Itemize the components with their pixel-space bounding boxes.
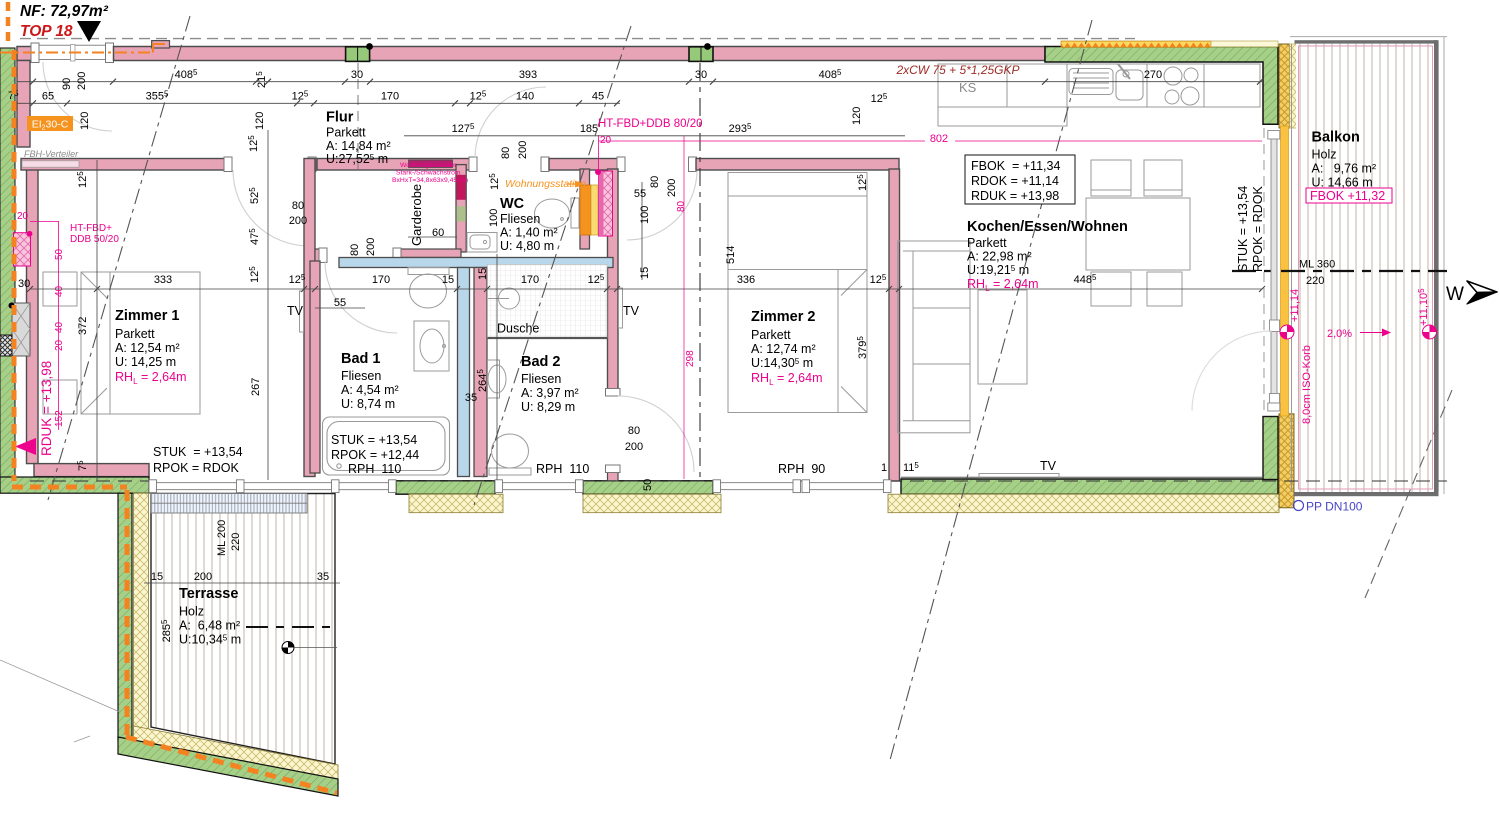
svg-text:A: 4,54 m²: A: 4,54 m²: [341, 383, 399, 397]
svg-text:Parkett: Parkett: [326, 126, 366, 140]
svg-text:40: 40: [54, 285, 65, 297]
svg-text:U: 8,29 m: U: 8,29 m: [521, 400, 575, 414]
svg-text:20: 20: [54, 339, 65, 351]
svg-text:RHL = 2,64m: RHL = 2,64m: [751, 371, 823, 387]
svg-text:170: 170: [381, 91, 399, 103]
svg-text:185: 185: [580, 123, 598, 135]
svg-text:RPH 90: RPH 90: [778, 462, 825, 476]
svg-text:+11,105: +11,105: [1417, 288, 1430, 326]
svg-text:220: 220: [230, 533, 242, 551]
svg-text:U: 4,80 m: U: 4,80 m: [500, 239, 554, 253]
svg-text:Terrasse: Terrasse: [179, 586, 238, 602]
svg-text:802: 802: [930, 133, 948, 145]
svg-text:RDOK = +11,14: RDOK = +11,14: [971, 174, 1059, 188]
svg-text:80: 80: [628, 425, 640, 437]
svg-text:RPOK = RDOK: RPOK = RDOK: [153, 461, 239, 475]
svg-text:Wohnungsverteiler: Wohnungsverteiler: [400, 162, 457, 169]
svg-text:RPOK = RDOK: RPOK = RDOK: [1251, 186, 1265, 272]
svg-text:393: 393: [519, 69, 537, 81]
svg-text:DDB 50/20: DDB 50/20: [70, 234, 119, 245]
svg-text:514: 514: [725, 246, 737, 264]
svg-text:200: 200: [194, 571, 212, 583]
svg-text:U:19,215 m: U:19,215 m: [967, 263, 1029, 277]
svg-text:FBOK = +11,34: FBOK = +11,34: [971, 159, 1060, 173]
svg-text:140: 140: [516, 91, 534, 103]
svg-text:Zimmer 1: Zimmer 1: [115, 308, 179, 324]
svg-text:55: 55: [334, 297, 346, 309]
svg-text:15: 15: [442, 274, 454, 286]
svg-text:8,0cm ISO-Korb: 8,0cm ISO-Korb: [1301, 345, 1313, 424]
svg-text:267: 267: [250, 378, 262, 396]
svg-text:A: 14,84 m²: A: 14,84 m²: [326, 139, 391, 153]
svg-text:80: 80: [349, 244, 361, 256]
svg-text:RHL = 2,64m: RHL = 2,64m: [967, 277, 1039, 293]
svg-text:STUK = +13,54: STUK = +13,54: [153, 445, 243, 459]
svg-text:270: 270: [1144, 69, 1162, 81]
svg-text:333: 333: [154, 274, 172, 286]
svg-text:WC: WC: [500, 196, 525, 212]
svg-text:100: 100: [639, 206, 651, 224]
svg-text:HT-FBD+: HT-FBD+: [70, 223, 112, 234]
svg-text:RPOK = +12,44: RPOK = +12,44: [331, 448, 419, 462]
svg-text:80: 80: [500, 147, 512, 159]
svg-text:NF: 72,97m²: NF: 72,97m²: [20, 3, 109, 20]
svg-text:RHL = 2,64m: RHL = 2,64m: [115, 370, 187, 386]
svg-text:FBH-Verteiler: FBH-Verteiler: [24, 149, 79, 159]
svg-text:A: 12,54 m²: A: 12,54 m²: [115, 341, 180, 355]
svg-text:120: 120: [254, 112, 266, 130]
svg-text:Parkett: Parkett: [115, 327, 155, 341]
svg-text:Balkon: Balkon: [1312, 130, 1360, 146]
svg-text:15: 15: [477, 268, 489, 280]
svg-text:220: 220: [1306, 275, 1324, 287]
svg-text:ML 200: ML 200: [216, 520, 228, 556]
svg-text:U: 14,66 m: U: 14,66 m: [1312, 176, 1373, 190]
svg-text:200: 200: [76, 72, 88, 90]
svg-text:KS: KS: [959, 80, 977, 95]
svg-text:80: 80: [676, 200, 687, 212]
svg-text:100: 100: [488, 209, 500, 227]
svg-text:Flur: Flur: [326, 110, 354, 126]
svg-text:A: 1,40 m²: A: 1,40 m²: [500, 226, 558, 240]
svg-text:30: 30: [18, 278, 30, 290]
svg-text:A: 9,76 m²: A: 9,76 m²: [1312, 162, 1377, 176]
svg-text:Holz: Holz: [1312, 148, 1337, 162]
svg-text:336: 336: [737, 274, 755, 286]
svg-text:Fliesen: Fliesen: [341, 369, 381, 383]
svg-text:152: 152: [54, 410, 65, 427]
svg-text:RPH 110: RPH 110: [536, 462, 589, 476]
svg-text:ML 360: ML 360: [1299, 259, 1335, 271]
svg-text:STUK = +13,54: STUK = +13,54: [331, 433, 417, 447]
svg-text:STUK = +13,54: STUK = +13,54: [1236, 186, 1250, 272]
svg-text:Bad 2: Bad 2: [521, 354, 561, 370]
svg-text:120: 120: [851, 107, 863, 125]
svg-text:200: 200: [625, 441, 643, 453]
svg-text:2xCW 75 + 5*1,25GKP: 2xCW 75 + 5*1,25GKP: [895, 63, 1019, 77]
svg-text:50: 50: [642, 479, 654, 491]
svg-text:200: 200: [365, 238, 377, 256]
svg-text:65: 65: [42, 91, 54, 103]
svg-text:20: 20: [17, 211, 29, 222]
svg-text:RDUK = +13,98: RDUK = +13,98: [971, 189, 1059, 203]
svg-text:Bad 1: Bad 1: [341, 351, 381, 367]
svg-text:35: 35: [317, 571, 329, 583]
svg-text:Parkett: Parkett: [751, 328, 791, 342]
svg-text:200: 200: [289, 215, 307, 227]
svg-text:170: 170: [521, 274, 539, 286]
svg-text:U:14,305 m: U:14,305 m: [751, 356, 813, 370]
svg-text:15: 15: [151, 571, 163, 583]
svg-text:RDUK = +13,98: RDUK = +13,98: [39, 361, 54, 456]
svg-text:U: 14,25 m: U: 14,25 m: [115, 355, 176, 369]
svg-text:20: 20: [600, 135, 612, 146]
svg-text:A: 3,97 m²: A: 3,97 m²: [521, 386, 579, 400]
svg-text:90: 90: [61, 78, 73, 90]
svg-text:170: 170: [372, 274, 390, 286]
svg-text:EI230-C: EI230-C: [32, 119, 69, 132]
svg-text:200: 200: [666, 179, 678, 197]
svg-text:2,0%: 2,0%: [1327, 328, 1352, 340]
svg-text:Kochen/Essen/Wohnen: Kochen/Essen/Wohnen: [967, 219, 1128, 235]
svg-text:50: 50: [54, 248, 65, 260]
svg-text:80: 80: [649, 176, 661, 188]
svg-text:Fliesen: Fliesen: [500, 212, 540, 226]
svg-text:Holz: Holz: [179, 605, 204, 619]
svg-text:120: 120: [79, 112, 91, 130]
svg-text:TV: TV: [623, 304, 640, 318]
svg-text:Zimmer 2: Zimmer 2: [751, 309, 815, 325]
svg-text:55: 55: [634, 188, 646, 200]
svg-text:U: 8,74 m: U: 8,74 m: [341, 397, 395, 411]
svg-text:30: 30: [695, 69, 707, 81]
svg-text:298: 298: [685, 350, 696, 367]
svg-text:FBOK +11,32: FBOK +11,32: [1310, 189, 1385, 203]
svg-text:U:10,345 m: U:10,345 m: [179, 633, 241, 647]
svg-text:TV: TV: [1040, 459, 1057, 473]
svg-text:A: 22,98 m²: A: 22,98 m²: [967, 250, 1032, 264]
svg-text:80: 80: [292, 200, 304, 212]
svg-text:TV: TV: [287, 304, 304, 318]
svg-text:372: 372: [77, 317, 89, 335]
svg-text:A: 6,48 m²: A: 6,48 m²: [179, 619, 240, 633]
svg-text:PP DN100: PP DN100: [1306, 500, 1363, 514]
svg-text:40: 40: [54, 321, 65, 333]
svg-text:Fliesen: Fliesen: [521, 372, 561, 386]
svg-text:HT-FBD+DDB 80/20: HT-FBD+DDB 80/20: [598, 118, 703, 130]
svg-text:U:27,525 m: U:27,525 m: [326, 152, 388, 166]
svg-text:Stark-/Schwachstrom: Stark-/Schwachstrom: [396, 170, 461, 177]
svg-text:TOP 18: TOP 18: [20, 23, 73, 40]
svg-text:BxHxT=34,8x63x9,45 cm: BxHxT=34,8x63x9,45 cm: [392, 177, 468, 184]
svg-text:45: 45: [592, 91, 604, 103]
svg-text:30: 30: [351, 69, 363, 81]
svg-text:200: 200: [517, 141, 529, 159]
svg-text:A: 12,74 m²: A: 12,74 m²: [751, 342, 816, 356]
svg-text:W: W: [1446, 284, 1464, 305]
svg-text:+11,14: +11,14: [1289, 289, 1301, 322]
svg-text:15: 15: [639, 267, 651, 279]
svg-text:RPH 110: RPH 110: [348, 462, 401, 476]
svg-text:Parkett: Parkett: [967, 236, 1007, 250]
svg-text:1: 1: [881, 462, 887, 474]
svg-text:35: 35: [465, 392, 477, 404]
